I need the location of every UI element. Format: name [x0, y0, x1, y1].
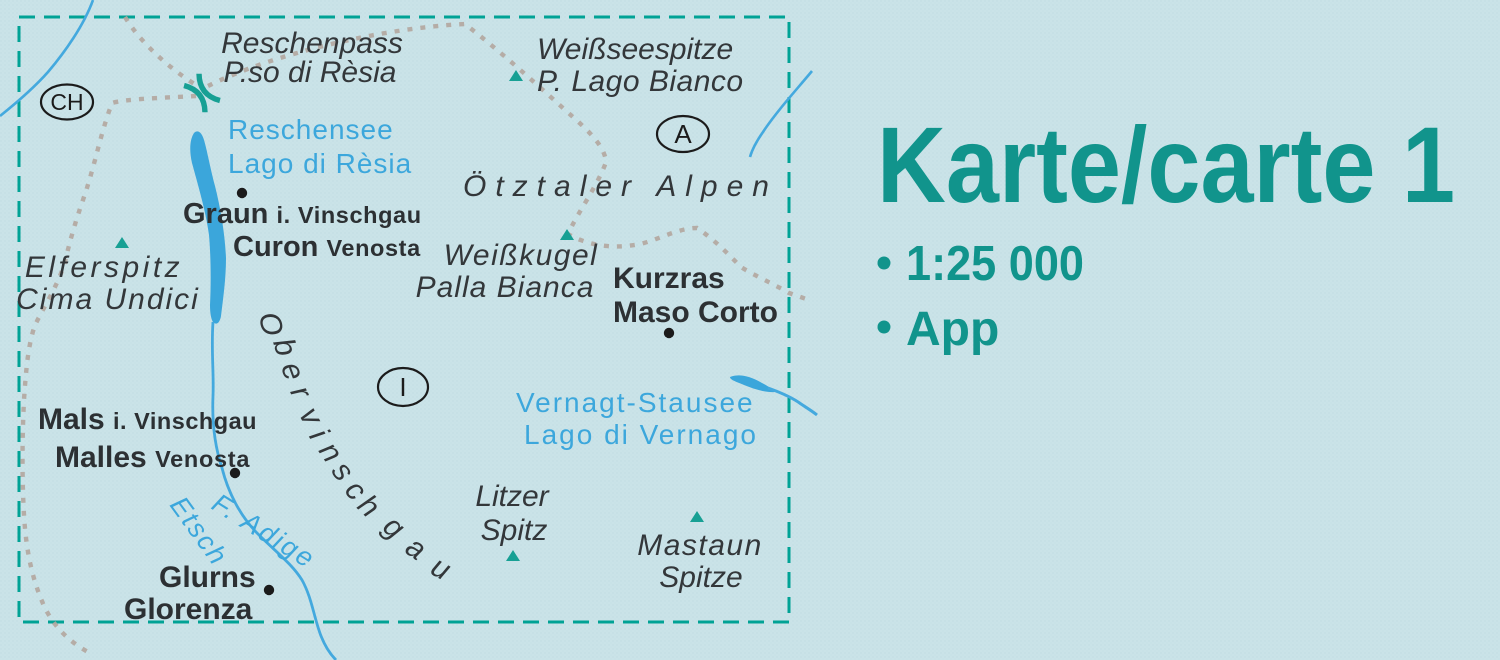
svg-text:P.so di Rèsia: P.so di Rèsia: [224, 56, 397, 89]
svg-text:Graun i. Vinschgau: Graun i. Vinschgau: [183, 198, 422, 230]
svg-text:Mals i. Vinschgau: Mals i. Vinschgau: [38, 403, 257, 436]
svg-text:Curon Venosta: Curon Venosta: [233, 231, 421, 263]
svg-text:A: A: [674, 119, 692, 149]
svg-text:Malles Venosta: Malles Venosta: [55, 441, 250, 474]
svg-text:1:25 000: 1:25 000: [906, 237, 1084, 291]
svg-text:Weißseespitze: Weißseespitze: [537, 33, 733, 66]
svg-text:CH: CH: [50, 89, 83, 115]
svg-text:Karte/carte 1: Karte/carte 1: [877, 104, 1455, 225]
svg-text:Spitz: Spitz: [481, 514, 548, 547]
svg-text:Reschensee: Reschensee: [228, 114, 394, 145]
svg-text:Lago di Rèsia: Lago di Rèsia: [228, 148, 412, 179]
svg-text:Maso Corto: Maso Corto: [613, 296, 778, 329]
svg-text:Vernagt-Stausee: Vernagt-Stausee: [516, 387, 755, 418]
svg-text:Weißkugel: Weißkugel: [444, 239, 599, 272]
svg-text:App: App: [906, 303, 999, 356]
svg-text:I: I: [399, 372, 406, 402]
svg-text:Cima Undici: Cima Undici: [16, 283, 200, 316]
svg-text:Lago di Vernago: Lago di Vernago: [524, 419, 758, 450]
svg-text:Litzer: Litzer: [475, 480, 549, 513]
svg-text:Ötztaler Alpen: Ötztaler Alpen: [463, 170, 778, 203]
svg-text:Spitze: Spitze: [659, 561, 742, 594]
svg-text:Glurns: Glurns: [159, 561, 256, 594]
svg-text:P. Lago Bianco: P. Lago Bianco: [537, 65, 744, 98]
svg-text:Kurzras: Kurzras: [613, 262, 725, 295]
svg-text:Mastaun: Mastaun: [637, 529, 763, 562]
svg-text:Glorenza: Glorenza: [124, 593, 253, 626]
svg-text:Palla Bianca: Palla Bianca: [416, 271, 595, 304]
svg-text:Elferspitz: Elferspitz: [25, 251, 183, 284]
